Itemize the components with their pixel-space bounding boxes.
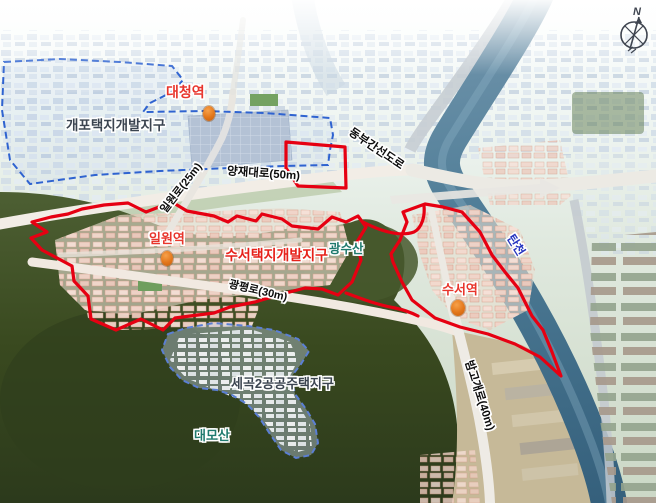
compass-north-letter: N xyxy=(633,6,642,18)
gwangsusan-label: 광수산 xyxy=(329,243,364,256)
daecheong-station-marker xyxy=(203,106,215,121)
suseo-district-label: 수서택지개발지구 xyxy=(225,248,328,262)
daemosan-label: 대모산 xyxy=(194,429,230,442)
compass-icon: N xyxy=(616,3,654,57)
irwon-station-marker xyxy=(161,251,173,266)
sports-field-north xyxy=(250,94,278,106)
park-patch xyxy=(572,92,644,134)
aerial-map: 개포택지개발지구 대청역 양재대로(50m) 일원로(25m) 동부간선도로 일… xyxy=(0,0,656,503)
segok2-district-label: 세곡2공공주택지구 xyxy=(231,377,334,390)
suseo-station-label: 수서역 xyxy=(442,283,478,296)
suseo-station-marker xyxy=(451,300,465,316)
south-apartments xyxy=(420,450,480,503)
irwon-station-label: 일원역 xyxy=(149,232,185,245)
gaepo-district-label: 개포택지개발지구 xyxy=(66,119,165,133)
daecheong-station-label: 대청역 xyxy=(166,85,205,99)
atmosphere-haze xyxy=(0,0,656,75)
